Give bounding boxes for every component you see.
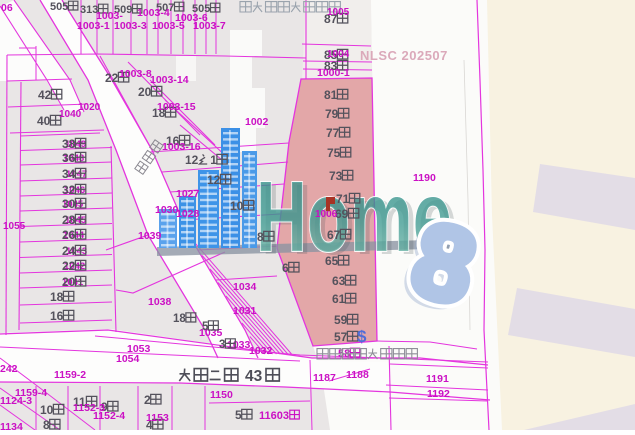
svg-text:242: 242 (0, 363, 18, 375)
svg-text:1003-7: 1003-7 (193, 20, 226, 32)
svg-text:1188: 1188 (346, 369, 369, 381)
svg-text:3: 3 (219, 339, 225, 351)
svg-text:1032: 1032 (249, 345, 273, 357)
svg-text:1192: 1192 (427, 388, 450, 400)
svg-text:77: 77 (326, 126, 340, 140)
svg-text:75: 75 (327, 146, 341, 160)
svg-text:1003-8: 1003-8 (119, 68, 152, 80)
svg-text:16: 16 (50, 309, 64, 323)
svg-text:1003-3: 1003-3 (114, 20, 147, 32)
svg-text:1004: 1004 (327, 49, 350, 60)
svg-text:57: 57 (334, 330, 348, 344)
svg-text:1003-16: 1003-16 (162, 141, 201, 153)
svg-text:59: 59 (334, 313, 348, 327)
svg-text:1040: 1040 (59, 109, 82, 120)
svg-text:5: 5 (235, 408, 242, 422)
svg-text:28: 28 (62, 213, 76, 227)
svg-text:1003-14: 1003-14 (150, 74, 189, 86)
svg-text:65: 65 (325, 254, 339, 268)
svg-text:1054: 1054 (116, 353, 140, 365)
svg-text:81: 81 (324, 88, 338, 102)
svg-text:1031: 1031 (233, 305, 257, 317)
svg-text:8: 8 (257, 230, 264, 244)
svg-text:1159-2: 1159-2 (54, 369, 86, 381)
svg-text:1124-3: 1124-3 (0, 395, 32, 407)
svg-text:20: 20 (138, 85, 152, 99)
svg-text:18: 18 (50, 290, 64, 304)
svg-text:22: 22 (105, 71, 119, 85)
svg-text:1055: 1055 (3, 221, 26, 232)
svg-text:20: 20 (62, 275, 76, 289)
svg-text:18: 18 (173, 313, 186, 325)
svg-text:1034: 1034 (233, 281, 257, 293)
svg-text:1003-15: 1003-15 (157, 101, 196, 113)
svg-text:12: 12 (185, 153, 199, 167)
svg-text:6: 6 (282, 261, 289, 275)
svg-text:1028: 1028 (176, 208, 200, 220)
svg-text:30: 30 (62, 197, 76, 211)
svg-text:1002: 1002 (245, 116, 269, 128)
svg-text:1003-1: 1003-1 (77, 20, 110, 32)
svg-text:1030: 1030 (155, 204, 179, 216)
svg-text:79: 79 (325, 107, 339, 121)
svg-text:06: 06 (1, 2, 13, 14)
svg-text:1000-1: 1000-1 (317, 67, 350, 79)
svg-text:1: 1 (210, 153, 217, 167)
svg-text:1027: 1027 (176, 188, 200, 200)
svg-text:1003-4: 1003-4 (137, 7, 170, 19)
svg-text:22: 22 (62, 259, 76, 273)
svg-text:26: 26 (62, 228, 76, 242)
svg-text:1191: 1191 (426, 373, 449, 385)
svg-text:$: $ (357, 327, 367, 346)
svg-text:1190: 1190 (413, 172, 436, 184)
svg-text:61: 61 (332, 292, 346, 306)
svg-text:67: 67 (327, 228, 341, 242)
svg-text:34: 34 (62, 167, 76, 181)
svg-text:2: 2 (144, 393, 151, 407)
svg-text:38: 38 (62, 137, 76, 151)
svg-text:71: 71 (336, 192, 350, 206)
svg-text:NLSC 202507: NLSC 202507 (360, 48, 448, 63)
svg-text:1020: 1020 (78, 102, 101, 113)
svg-text:63: 63 (332, 274, 346, 288)
svg-text:10: 10 (40, 403, 54, 417)
svg-text:1152-4: 1152-4 (93, 410, 125, 422)
svg-text:24: 24 (62, 244, 76, 258)
svg-text:40: 40 (37, 114, 51, 128)
svg-text:1187: 1187 (313, 372, 336, 384)
svg-text:1005: 1005 (327, 7, 350, 18)
svg-text:8: 8 (43, 418, 50, 430)
svg-text:12: 12 (207, 173, 221, 187)
svg-text:1153: 1153 (146, 412, 169, 424)
svg-text:1038: 1038 (148, 296, 172, 308)
svg-text:1134: 1134 (0, 421, 23, 430)
svg-text:1039: 1039 (138, 230, 162, 242)
svg-text:11603: 11603 (259, 410, 289, 422)
svg-text:505: 505 (50, 1, 68, 13)
svg-text:43: 43 (245, 368, 263, 385)
svg-text:73: 73 (329, 169, 343, 183)
svg-text:36: 36 (62, 151, 76, 165)
svg-text:1150: 1150 (210, 389, 233, 401)
svg-text:10: 10 (230, 199, 244, 213)
svg-text:32: 32 (62, 183, 76, 197)
svg-text:42: 42 (38, 88, 52, 102)
